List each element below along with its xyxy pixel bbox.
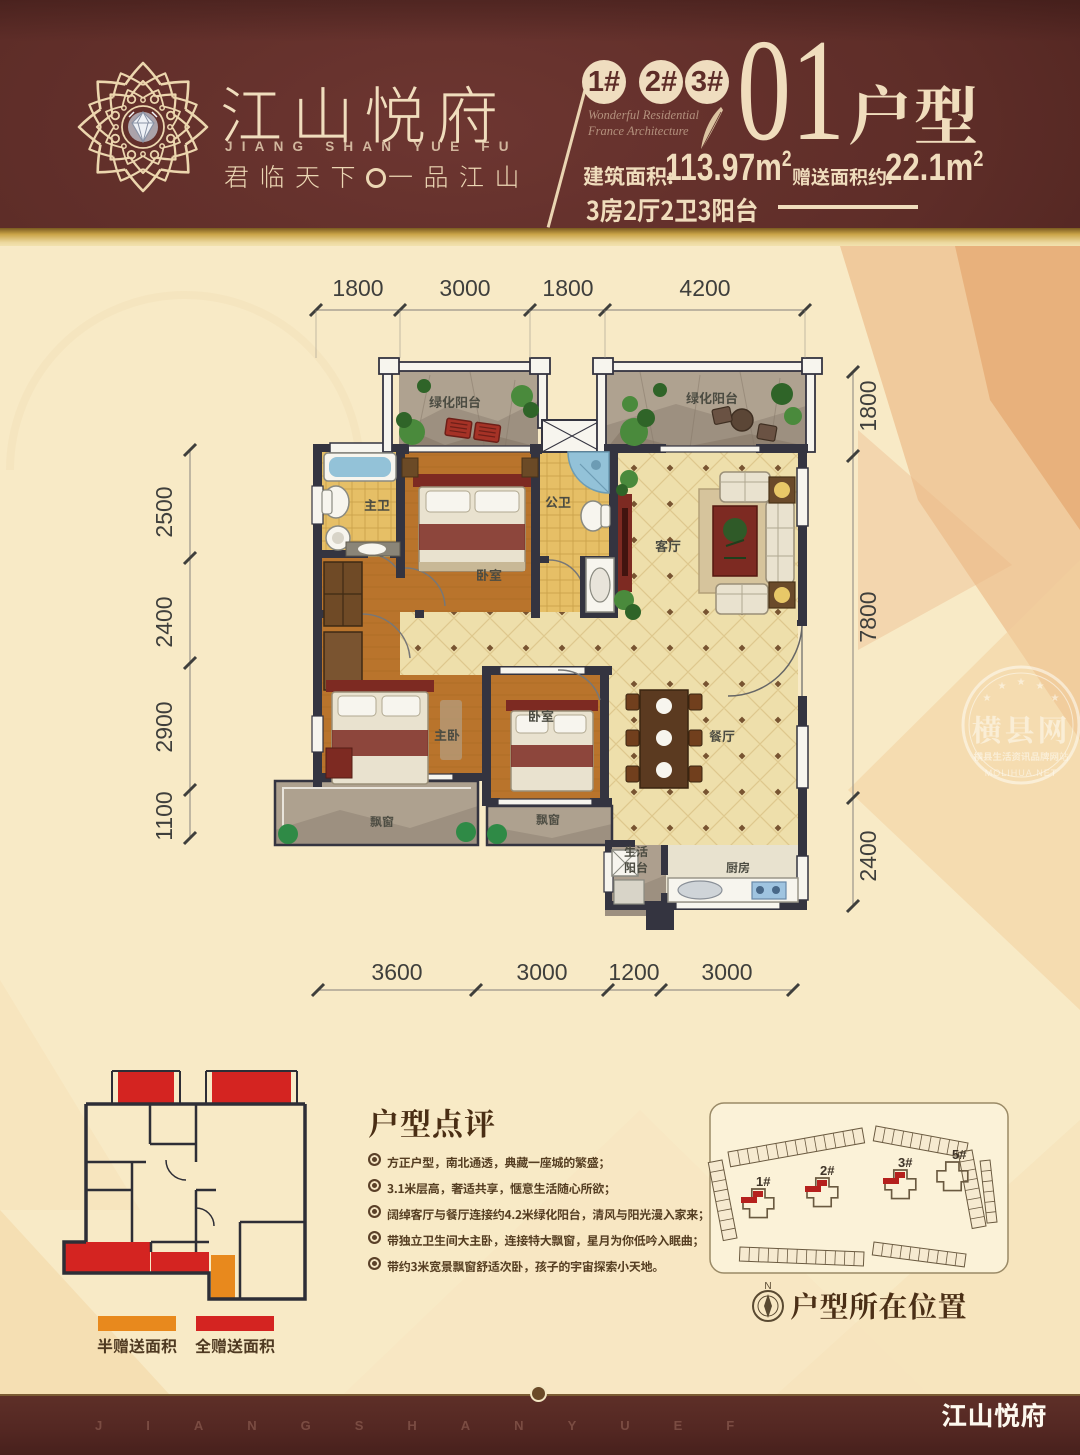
svg-text:1800: 1800 (332, 275, 383, 301)
svg-text:阳台: 阳台 (624, 859, 648, 876)
svg-text:4200: 4200 (679, 275, 730, 301)
svg-text:公卫: 公卫 (545, 492, 571, 511)
svg-text:3000: 3000 (439, 275, 490, 301)
svg-text:★: ★ (1017, 677, 1026, 688)
svg-text:主卧: 主卧 (434, 725, 460, 744)
svg-text:绿化阳台: 绿化阳台 (429, 392, 481, 411)
svg-text:5#: 5# (952, 1147, 967, 1162)
svg-text:卧室: 卧室 (476, 565, 502, 584)
svg-text:户型所在位置: 户型所在位置 (790, 1285, 967, 1326)
svg-text:卧室: 卧室 (528, 706, 554, 725)
svg-text:生活: 生活 (624, 843, 648, 860)
svg-text:2500: 2500 (151, 486, 177, 537)
svg-text:3#: 3# (898, 1155, 913, 1170)
svg-text:横县网: 横县网 (972, 706, 1071, 750)
svg-text:飘窗: 飘窗 (536, 811, 560, 828)
svg-text:★: ★ (1051, 693, 1060, 704)
svg-text:主卫: 主卫 (364, 495, 390, 514)
svg-text:1#: 1# (756, 1174, 771, 1189)
svg-text:★: ★ (983, 693, 992, 704)
svg-text:3000: 3000 (701, 959, 752, 985)
svg-text:飘窗: 飘窗 (370, 813, 394, 830)
svg-text:1200: 1200 (608, 959, 659, 985)
svg-text:2400: 2400 (855, 830, 881, 881)
svg-text:★: ★ (998, 681, 1007, 692)
svg-text:半赠送面积: 半赠送面积 (97, 1333, 177, 1357)
svg-text:横县生活资讯品牌网站: 横县生活资讯品牌网站 (973, 749, 1069, 763)
svg-text:1800: 1800 (855, 380, 881, 431)
svg-text:1100: 1100 (151, 791, 177, 840)
svg-text:全赠送面积: 全赠送面积 (195, 1333, 275, 1357)
svg-text:7800: 7800 (855, 591, 881, 642)
svg-text:N: N (764, 1281, 771, 1292)
svg-text:2#: 2# (820, 1163, 835, 1178)
svg-text:3000: 3000 (516, 959, 567, 985)
svg-text:客厅: 客厅 (655, 536, 681, 555)
svg-text:MOLIHUA.NET: MOLIHUA.NET (985, 768, 1058, 778)
svg-text:★: ★ (1036, 681, 1045, 692)
svg-text:1800: 1800 (542, 275, 593, 301)
svg-text:餐厅: 餐厅 (709, 726, 735, 745)
svg-text:2400: 2400 (151, 596, 177, 647)
svg-text:绿化阳台: 绿化阳台 (686, 388, 738, 407)
svg-text:厨房: 厨房 (726, 859, 750, 876)
svg-text:2900: 2900 (151, 701, 177, 752)
svg-text:3600: 3600 (371, 959, 422, 985)
